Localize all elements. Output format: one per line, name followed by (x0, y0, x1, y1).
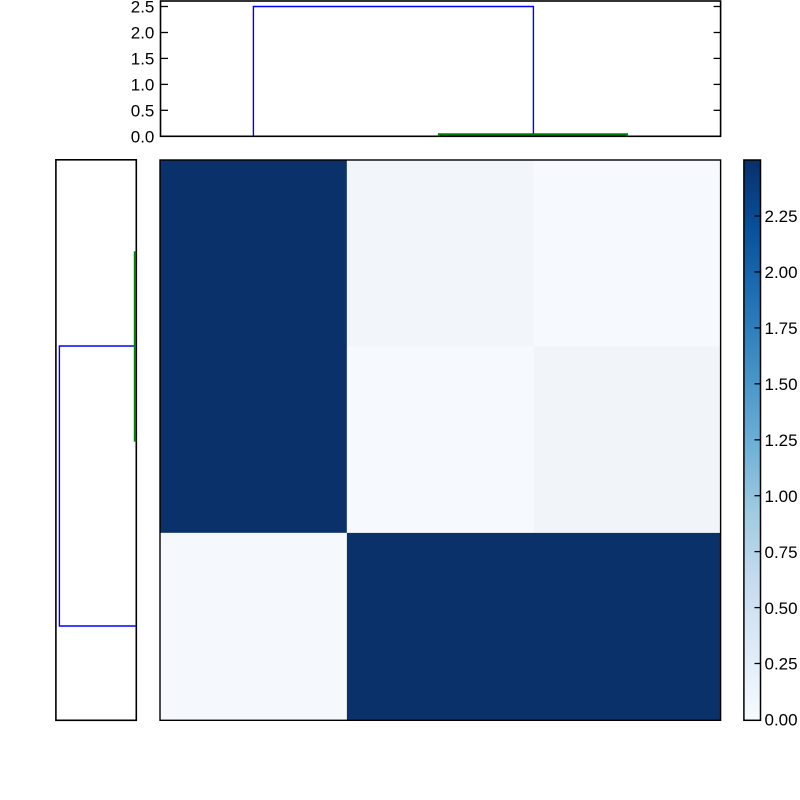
svg-text:2.0: 2.0 (131, 24, 155, 43)
svg-text:0.0: 0.0 (131, 128, 155, 147)
svg-text:1.0: 1.0 (131, 76, 155, 95)
svg-text:0.5: 0.5 (131, 102, 155, 121)
svg-text:2.00: 2.00 (765, 263, 798, 282)
svg-text:0.50: 0.50 (765, 599, 798, 618)
svg-text:0.75: 0.75 (765, 543, 798, 562)
svg-text:1.75: 1.75 (765, 319, 798, 338)
svg-text:1.00: 1.00 (765, 487, 798, 506)
svg-text:0.25: 0.25 (765, 655, 798, 674)
svg-text:1.5: 1.5 (131, 50, 155, 69)
svg-text:2.5: 2.5 (131, 0, 155, 17)
svg-text:0.00: 0.00 (765, 711, 798, 730)
svg-text:1.50: 1.50 (765, 375, 798, 394)
svg-text:2.25: 2.25 (765, 207, 798, 226)
svg-text:1.25: 1.25 (765, 431, 798, 450)
